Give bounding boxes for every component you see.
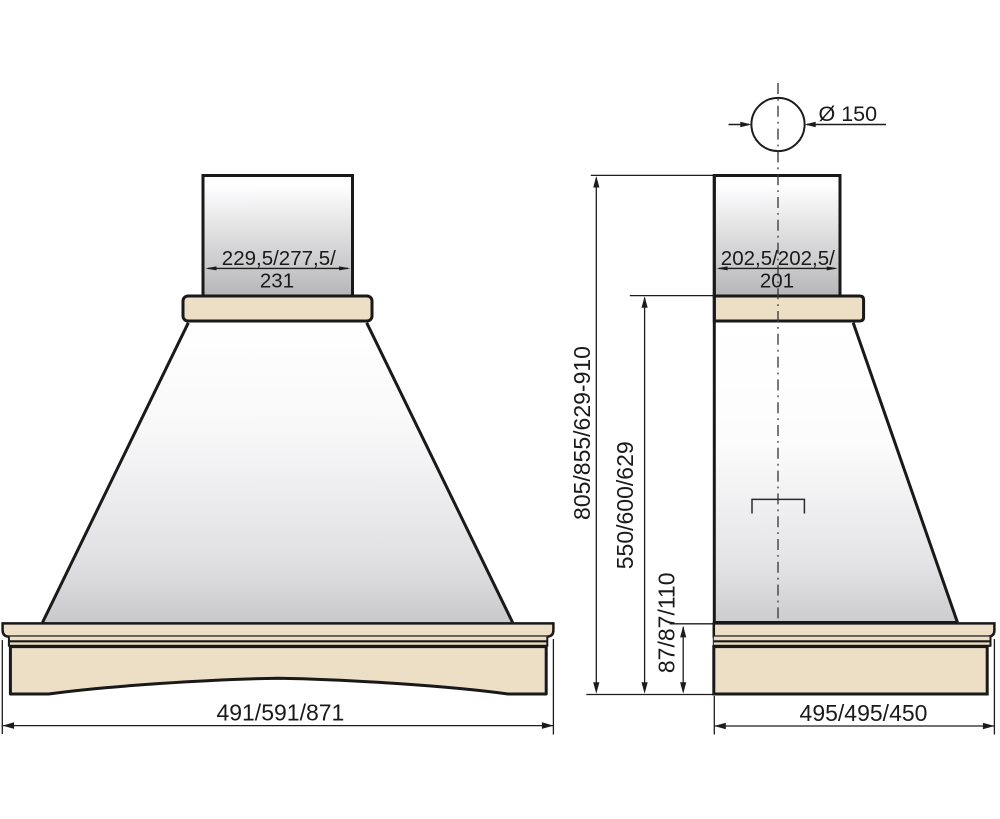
- svg-text:Ø 150: Ø 150: [819, 102, 878, 126]
- svg-text:495/495/450: 495/495/450: [800, 700, 928, 726]
- svg-text:201: 201: [760, 270, 794, 293]
- svg-text:805/855/629-910: 805/855/629-910: [569, 346, 595, 520]
- svg-text:491/591/871: 491/591/871: [216, 699, 344, 725]
- svg-text:231: 231: [260, 270, 294, 293]
- svg-text:87/87/110: 87/87/110: [654, 572, 680, 673]
- svg-text:229,5/277,5/: 229,5/277,5/: [222, 247, 336, 270]
- svg-text:550/600/629: 550/600/629: [612, 441, 638, 569]
